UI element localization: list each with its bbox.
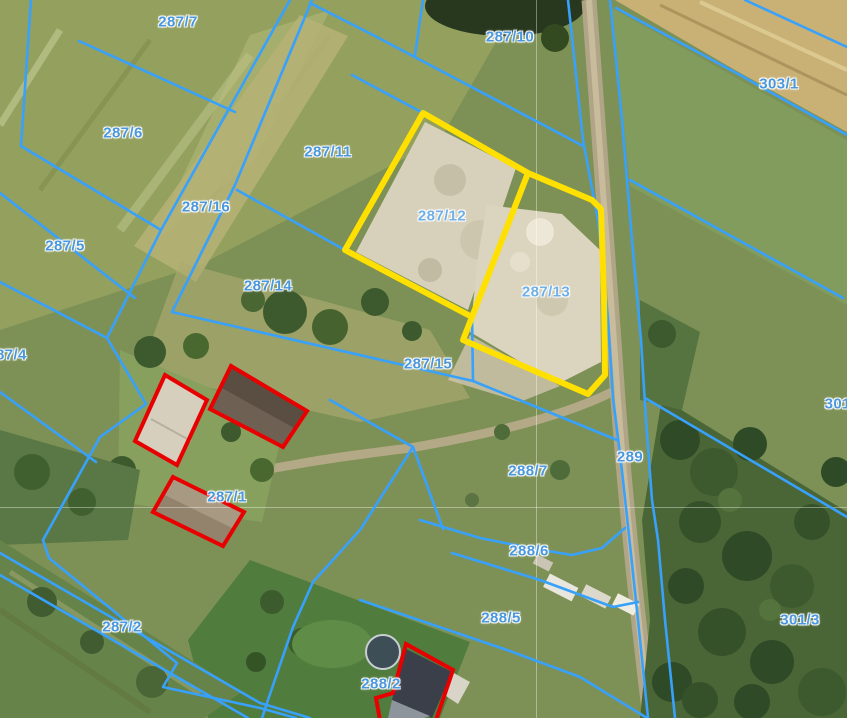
aerial-imagery [0,0,847,718]
map-overlay-svg [0,0,847,718]
map-canvas[interactable]: 287/7 287/10 303/1 287/6 287/11 287/16 2… [0,0,847,718]
